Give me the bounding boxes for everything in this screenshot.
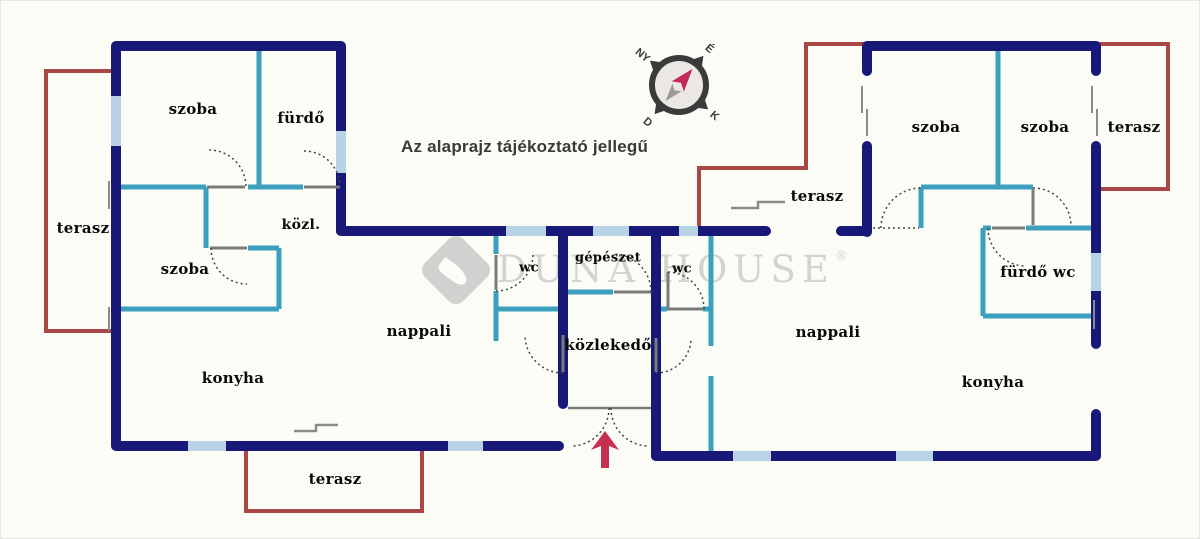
room-label-nappali-left: nappali bbox=[387, 322, 452, 340]
floorplan: DUNA HOUSE® bbox=[0, 0, 1200, 539]
room-label-terasz-left: terasz bbox=[57, 219, 110, 237]
terrace-left-outline bbox=[46, 71, 111, 331]
room-label-szoba-right-2: szoba bbox=[1021, 118, 1070, 136]
compass-dial bbox=[641, 47, 717, 123]
terrace-top-right-outline bbox=[1096, 44, 1168, 189]
room-label-kozlekedo: közlekedő bbox=[564, 336, 651, 354]
room-label-szoba-right-1: szoba bbox=[912, 118, 961, 136]
compass-label-south: D bbox=[641, 115, 655, 129]
compass-label-north: É bbox=[703, 41, 717, 56]
compass-label-west: NY bbox=[633, 46, 653, 65]
room-label-terasz-top-right: terasz bbox=[1108, 118, 1161, 136]
room-label-wc-left: wc bbox=[519, 261, 539, 276]
room-label-furdo-wc: fürdő wc bbox=[1000, 263, 1075, 281]
compass-label-east: K bbox=[707, 109, 721, 123]
room-label-terasz-middle: terasz bbox=[791, 187, 844, 205]
room-label-konyha-left: konyha bbox=[202, 369, 264, 387]
room-label-szoba-top-left: szoba bbox=[169, 100, 218, 118]
room-label-nappali-right: nappali bbox=[796, 323, 861, 341]
room-label-kozl: közl. bbox=[282, 217, 321, 233]
entrance-arrow bbox=[591, 431, 619, 468]
room-label-wc-right: wc bbox=[672, 262, 692, 277]
room-label-terasz-bottom: terasz bbox=[309, 470, 362, 488]
room-label-konyha-right: konyha bbox=[962, 373, 1024, 391]
room-label-szoba-lower-left: szoba bbox=[161, 260, 210, 278]
plan-disclaimer: Az alaprajz tájékoztató jellegű bbox=[401, 137, 648, 157]
room-label-furdo: fürdő bbox=[277, 109, 324, 127]
room-label-gepeszet: gépészet bbox=[575, 251, 641, 266]
right-unit-walls bbox=[656, 46, 1096, 456]
